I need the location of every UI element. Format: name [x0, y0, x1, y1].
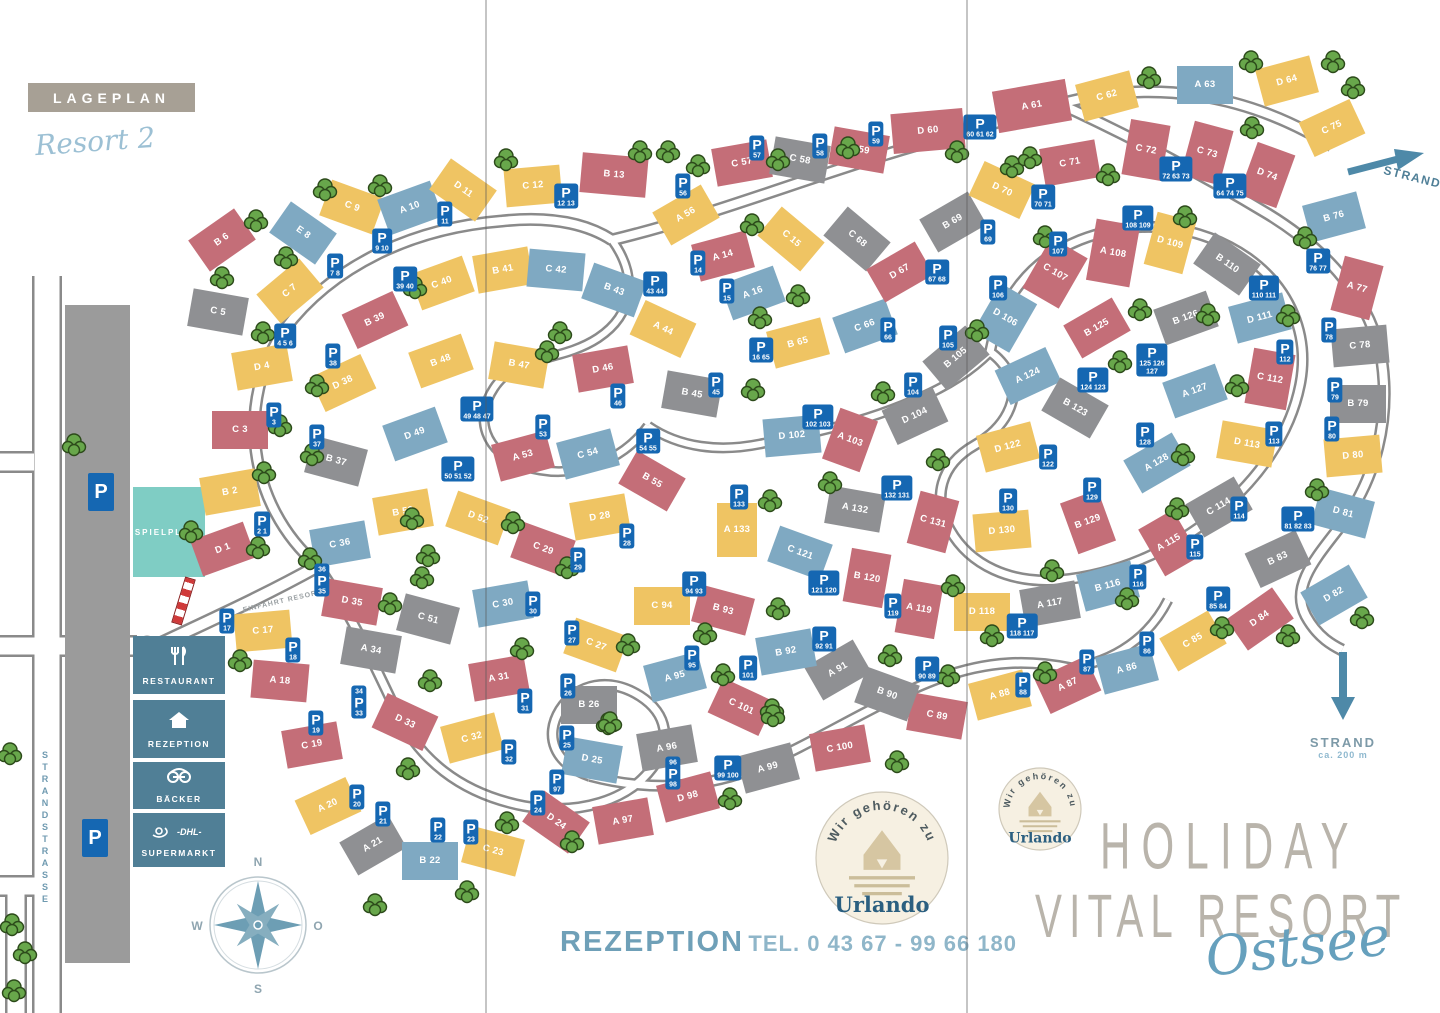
parking-sign-97: P97: [549, 770, 564, 795]
building-label: B 39: [363, 311, 387, 329]
parking-sign-9 10: P9 10: [372, 229, 392, 254]
building-label: C 71: [1059, 156, 1082, 170]
parking-sign-60 61 62: P60 61 62: [963, 115, 996, 140]
building-D-118: D 118: [954, 593, 1010, 631]
parking-numbers: 95: [687, 663, 696, 670]
parking-sign-112: P112: [1276, 340, 1293, 365]
parking-sign-80: P80: [1324, 417, 1339, 442]
building-label: A 21: [361, 835, 384, 854]
facility-supermarkt: -DHL-SUPERMARKT: [133, 813, 225, 867]
parking-p-glyph: P: [466, 822, 475, 836]
parking-numbers: 64 74 75: [1216, 191, 1243, 198]
facility-label: BÄCKER: [156, 794, 201, 804]
building-label: C 30: [492, 597, 515, 611]
parking-p-glyph: P: [815, 629, 833, 643]
compass-n: N: [254, 855, 263, 869]
parking-p-glyph: P: [330, 256, 340, 270]
parking-sign-129: P129: [1083, 478, 1101, 503]
parking-p-glyph: P: [1284, 509, 1311, 523]
parking-sign-45: P45: [708, 373, 723, 398]
parking-numbers: 56: [678, 191, 687, 198]
parking-sign-72 63 73: P72 63 73: [1159, 157, 1192, 182]
facility-rezeption: REZEPTION: [133, 700, 225, 758]
building-label: B 48: [429, 353, 452, 370]
parking-sign-29: P29: [570, 548, 585, 573]
building-label: A 117: [1036, 597, 1063, 611]
parking-numbers: 87: [1082, 667, 1091, 674]
parking-numbers: 58: [815, 151, 824, 158]
building-label: D 74: [1255, 167, 1278, 184]
parking-p-glyph: P: [573, 550, 582, 564]
parking-p-glyph: P: [463, 399, 490, 413]
parking-numbers: 85 84: [1209, 604, 1227, 611]
parking-p-glyph: P: [717, 758, 738, 772]
parking-sign-3: P3: [266, 403, 281, 428]
parking-numbers: 125 126: [1139, 361, 1164, 368]
parking-p-glyph: P: [1125, 208, 1150, 222]
building-A-18: A 18: [250, 660, 309, 703]
parking-sign-18: P18: [285, 638, 300, 663]
parking-sign-133: P133: [730, 485, 748, 510]
building-label: A 115: [1155, 532, 1182, 554]
parking-sign-11: P11: [437, 202, 452, 227]
building-label: B 125: [1083, 317, 1111, 339]
parking-sign-15: P15: [719, 279, 734, 304]
parking-sign-23: P23: [463, 820, 478, 845]
parking-numbers: 105: [942, 343, 954, 350]
parking-sign-81 82 83: P81 82 83: [1281, 507, 1314, 532]
parking-sign-113: P113: [1265, 422, 1282, 447]
building-C-17: C 17: [233, 610, 292, 653]
parking-sign-95: P95: [684, 646, 699, 671]
building-label: D 35: [341, 595, 364, 609]
parking-sign-32: P32: [501, 740, 516, 765]
parking-numbers: 45: [711, 390, 720, 397]
building-label: D 46: [592, 362, 615, 376]
parking-sign-34-33: 34P33: [351, 686, 366, 719]
reception-phone: TEL. 0 43 67 - 99 66 180: [748, 931, 1017, 956]
parking-p-glyph: P: [504, 742, 513, 756]
parking-numbers: 15: [722, 296, 731, 303]
building-label: A 128: [1143, 452, 1171, 474]
parking-sign-25: P25: [559, 726, 574, 751]
building-label: C 114: [1205, 496, 1233, 518]
building-label: B 37: [324, 453, 347, 468]
parking-sign-79: P79: [1327, 378, 1342, 403]
parking-numbers: 20: [352, 802, 361, 809]
parking-sign-66: P66: [880, 318, 895, 343]
compass-o: O: [313, 919, 322, 933]
parking-p-glyph: P: [1132, 567, 1143, 581]
building-label: B 116: [1094, 578, 1122, 594]
parking-p-glyph: P: [317, 574, 326, 588]
parking-numbers: 37: [312, 442, 321, 449]
building-label: C 59: [848, 143, 871, 157]
building-label: B 69: [941, 212, 964, 231]
parking-sign-20: P20: [349, 785, 364, 810]
building-label: B 13: [603, 169, 625, 181]
building-label: C 36: [329, 537, 352, 551]
parking-p-glyph: P: [1327, 419, 1336, 433]
building-label: B 83: [1266, 550, 1290, 568]
parking-p-glyph: P: [375, 231, 389, 245]
parking-numbers: 122: [1042, 462, 1054, 469]
building-label: A 108: [1099, 246, 1127, 260]
building-label: C 5: [209, 306, 226, 319]
building-C-3: C 3: [212, 411, 268, 449]
building-label: D 102: [778, 430, 806, 442]
building-label: B 123: [1061, 397, 1089, 419]
building-label: C 68: [846, 228, 869, 249]
building-label: A 56: [674, 205, 697, 224]
parking-sign-4 5 6: P4 5 6: [274, 324, 296, 349]
parking-sign-108 109: P108 109: [1122, 206, 1153, 231]
parking-sign-106: P106: [989, 276, 1007, 301]
building-label: C 32: [460, 730, 483, 745]
parking-numbers: 128: [1139, 440, 1151, 447]
building-label: C 89: [926, 709, 949, 723]
building-A-133: A 133: [717, 503, 757, 557]
fold-line: [485, 0, 487, 1013]
building-label: D 109: [1156, 235, 1185, 252]
parking-numbers: 115: [1189, 552, 1200, 559]
parking-p-glyph: P: [711, 375, 720, 389]
parking-p-glyph: P: [752, 340, 770, 354]
building-B-13: B 13: [579, 152, 648, 198]
svg-text:Urlando: Urlando: [835, 892, 930, 917]
parking-sign-53: P53: [535, 415, 550, 440]
parking-p-glyph: P: [1082, 652, 1091, 666]
parking-p-glyph: P: [742, 658, 754, 672]
building-label: C 121: [786, 544, 815, 563]
parking-sign-14: P14: [690, 251, 705, 276]
parking-numbers: 32: [504, 757, 513, 764]
urlando-badge: Wir gehören zu Urlando: [994, 763, 1086, 855]
parking-sign-39 40: P39 40: [393, 267, 417, 292]
parking-p-glyph: P: [257, 514, 267, 528]
building-label: B 22: [419, 856, 440, 866]
parking-sign-38: P38: [325, 344, 340, 369]
parking-numbers: 49 48 47: [463, 414, 490, 421]
facility-restaurant: RESTAURANT: [133, 636, 225, 694]
building-label: C 54: [576, 446, 599, 461]
parking-numbers: 46: [613, 401, 622, 408]
building-label: D 111: [1246, 310, 1274, 326]
parking-p-glyph: P: [1309, 251, 1327, 265]
parking-numbers: 39 40: [396, 284, 414, 291]
parking-p-glyph: P: [1268, 424, 1279, 438]
parking-p-glyph: P: [538, 417, 547, 431]
parking-p-glyph: P: [378, 804, 387, 818]
building-label: D 122: [994, 439, 1023, 456]
parking-p-glyph: P: [528, 594, 537, 608]
parking-numbers: 113: [1268, 439, 1279, 446]
parking-numbers: 11: [440, 219, 449, 226]
parking-sign-125 126-127: P125 126127: [1136, 344, 1167, 377]
parking-numbers: 29: [573, 565, 582, 572]
parking-p-glyph: P: [352, 787, 361, 801]
parking-numbers: 23: [466, 837, 475, 844]
building-label: A 86: [1116, 661, 1139, 676]
parking-p-glyph: P: [1018, 675, 1027, 689]
building-label: A 77: [1346, 280, 1369, 295]
parking-sign-105: P105: [939, 326, 957, 351]
restaurant-icon: [168, 645, 190, 672]
parking-sign-114: P114: [1230, 497, 1247, 522]
parking-p-glyph: P: [1139, 425, 1151, 439]
parking-p-glyph: P: [983, 222, 992, 236]
parking-numbers: 108 109: [1125, 223, 1150, 230]
parking-numbers: 99 100: [717, 773, 738, 780]
parking-sign-50 51 52: P50 51 52: [441, 457, 474, 482]
parking-sign-30: P30: [525, 592, 540, 617]
building-label: A 53: [512, 448, 535, 463]
parking-numbers: 30: [528, 609, 537, 616]
parking-sign-115: P115: [1186, 535, 1203, 560]
parking-numbers: 114: [1233, 514, 1244, 521]
parking-p-glyph: P: [942, 328, 954, 342]
parking-numbers: 4 5 6: [277, 341, 293, 348]
building-label: C 58: [789, 153, 812, 167]
parking-numbers: 60 61 62: [966, 132, 993, 139]
parking-numbers: 118 117: [1010, 631, 1035, 638]
building-A-63: A 63: [1177, 66, 1233, 104]
parking-sign-24: P24: [530, 791, 545, 816]
parking-numbers: 27: [567, 638, 576, 645]
parking-sign-76 77: P76 77: [1306, 249, 1330, 274]
building-D-60: D 60: [890, 108, 965, 154]
parking-numbers: 16 65: [752, 355, 770, 362]
parking-numbers: 129: [1086, 495, 1098, 502]
parking-p-glyph: P: [966, 117, 993, 131]
parking-p-glyph: P: [883, 320, 892, 334]
compass-s: S: [254, 982, 262, 996]
parking-p-glyph: P: [1080, 370, 1105, 384]
building-label: B 2: [221, 486, 238, 499]
building-label: C 100: [826, 741, 854, 755]
parking-numbers: 76 77: [1309, 266, 1327, 273]
building-label: A 88: [989, 687, 1012, 702]
building-label: C 12: [522, 180, 544, 192]
parking-p-glyph: P: [811, 573, 836, 587]
parking-numbers: 101: [742, 673, 754, 680]
parking-p-glyph: P: [622, 526, 631, 540]
reception-label: REZEPTION: [560, 926, 744, 958]
parking-numbers: 66: [883, 335, 892, 342]
resort-title-line1: HOLIDAY: [1100, 808, 1360, 884]
parking-p-glyph: P: [1216, 176, 1243, 190]
building-label: D 38: [331, 374, 355, 392]
parking-p-glyph: P: [887, 596, 898, 610]
parking-p-glyph: P: [722, 281, 731, 295]
parking-numbers: 81 82 83: [1284, 524, 1311, 531]
building-label: B 50: [392, 505, 415, 519]
parking-sign-36-35: 36P35: [314, 564, 329, 597]
parking-numbers: 33: [354, 711, 363, 718]
building-label: D 84: [1248, 609, 1271, 629]
parking-p-glyph: P: [693, 253, 702, 267]
parking-p-glyph: P: [639, 431, 657, 445]
parking-sign-102 103: P102 103: [802, 405, 833, 430]
building-label: D 11: [452, 180, 475, 200]
building-C-78: C 78: [1330, 325, 1389, 368]
building-label: C 107: [1041, 262, 1069, 284]
building-label: A 16: [741, 285, 764, 302]
parking-p-glyph: P: [992, 278, 1004, 292]
building-label: B 90: [875, 686, 898, 703]
parking-p-glyph: P: [871, 124, 880, 138]
parking-p-glyph: P: [685, 574, 703, 588]
building-label: D 1: [214, 542, 232, 557]
building-label: D 33: [393, 713, 417, 731]
parking-numbers: 50 51 52: [444, 474, 471, 481]
parking-sign-104: P104: [904, 373, 922, 398]
parking-sign-43 44: P43 44: [643, 272, 667, 297]
building-C-42: C 42: [526, 249, 585, 292]
building-label: C 27: [584, 637, 607, 654]
parking-numbers: 31: [520, 706, 529, 713]
building-label: A 103: [836, 431, 864, 449]
parking-sign-27: P27: [564, 621, 579, 646]
parking-sign-67 68: P67 68: [925, 260, 949, 285]
building-label: E 8: [294, 225, 312, 242]
parking-sign-70 71: P70 71: [1031, 185, 1055, 210]
parking-sign-119: P119: [884, 594, 901, 619]
parking-numbers: 21: [378, 819, 387, 826]
building-label: D 4: [253, 361, 270, 374]
parking-numbers: 119: [887, 611, 898, 618]
parking-p-glyph: P: [1086, 480, 1098, 494]
parking-p-glyph: P: [1324, 320, 1333, 334]
parking-p-glyph: P: [552, 772, 561, 786]
parking-sign-16 65: P16 65: [749, 338, 773, 363]
urlando-badge: Wir gehören zu Urlando: [811, 787, 953, 929]
parking-sign-90 89: P90 89: [915, 657, 939, 682]
parking-numbers: 102 103: [805, 422, 830, 429]
parking-p-glyph: P: [1002, 491, 1014, 505]
parking-numbers: 12 13: [557, 201, 575, 208]
building-label: B 41: [492, 263, 515, 277]
parking-sign-96-98: 96P98: [665, 757, 680, 790]
parking-p-glyph: P: [562, 728, 571, 742]
parking-numbers: 133: [733, 502, 745, 509]
svg-text:-DHL-: -DHL-: [177, 827, 202, 837]
building-label: D 70: [990, 181, 1014, 199]
building-label: B 120: [853, 571, 881, 585]
parking-numbers: 88: [1018, 690, 1027, 697]
building-label: C 19: [301, 738, 324, 752]
building-label: A 44: [651, 320, 674, 338]
parking-p-glyph: P: [918, 659, 936, 673]
building-label: D 130: [988, 525, 1016, 537]
parking-p-glyph: P: [269, 405, 278, 419]
parking-sign-92 91: P92 91: [812, 627, 836, 652]
building-label: D 28: [589, 510, 612, 524]
parking-p-glyph: P: [1139, 346, 1164, 360]
strand-right-text: STRAND: [1300, 735, 1386, 750]
parking-numbers: 92 91: [815, 644, 833, 651]
parking-sign-99 100: P99 100: [714, 756, 741, 781]
parking-numbers: 110 111: [1252, 293, 1276, 300]
parking-p-glyph: P: [752, 138, 761, 152]
building-label: D 49: [403, 426, 426, 443]
parking-sign-128: P128: [1136, 423, 1154, 448]
building-B-22: B 22: [402, 842, 458, 880]
parking-sign-101: P101: [739, 656, 757, 681]
parking-sign-85 84: P85 84: [1206, 587, 1230, 612]
parking-numbers: 7 8: [330, 271, 340, 278]
parking-numbers: 72 63 73: [1162, 174, 1189, 181]
parking-sign-58: P58: [812, 134, 827, 159]
building-label: C 85: [1181, 631, 1204, 650]
building-label: A 31: [488, 671, 510, 684]
parking-p-glyph: P: [1252, 278, 1276, 292]
building-label: A 87: [1056, 676, 1079, 694]
building-label: C 40: [430, 275, 453, 292]
parking-sign-121 120: P121 120: [808, 571, 839, 596]
parking-p-glyph: P: [687, 648, 696, 662]
parking-p-glyph: P: [1042, 447, 1054, 461]
building-label: B 93: [711, 602, 734, 617]
building-label: C 66: [853, 318, 876, 335]
parking-p-glyph: P: [277, 326, 293, 340]
building-label: C 94: [651, 601, 672, 611]
parking-numbers: 98: [668, 782, 677, 789]
building-label: D 64: [1275, 73, 1298, 88]
parking-p-glyph: P: [396, 269, 414, 283]
parking-numbers: 124 123: [1080, 385, 1105, 392]
parking-p-glyph: P: [433, 820, 442, 834]
parking-p-glyph: P: [613, 386, 622, 400]
building-label: A 96: [656, 741, 678, 754]
building-label: C 62: [1095, 88, 1118, 103]
parking-p-glyph: P: [646, 274, 664, 288]
svg-text:Urlando: Urlando: [1008, 831, 1071, 847]
parking-sign-107: P107: [1049, 232, 1067, 257]
parking-p-glyph: P: [354, 696, 363, 710]
building-label: C 42: [545, 264, 567, 276]
parking-sign-87: P87: [1079, 650, 1094, 675]
parking-numbers: 127: [1139, 369, 1164, 376]
parking-p-glyph: P: [1162, 159, 1189, 173]
parking-p-glyph: P: [222, 611, 231, 625]
parking-p-glyph: P: [668, 767, 677, 781]
building-label: C 101: [727, 697, 756, 717]
parking-numbers: 130: [1002, 506, 1014, 513]
building-label: A 99: [757, 760, 780, 775]
parking-sign-78: P78: [1321, 318, 1336, 343]
building-label: B 129: [1074, 513, 1103, 532]
building-label: D 82: [1322, 585, 1345, 604]
parking-lot-area: [65, 305, 130, 963]
building-label: C 51: [416, 611, 439, 626]
parking-numbers: 17: [222, 626, 231, 633]
strand-right-distance: ca. 200 m: [1300, 750, 1386, 760]
building-label: B 92: [775, 645, 798, 659]
parking-sign-31: P31: [517, 689, 532, 714]
building-label: B 47: [508, 358, 531, 372]
parking-sign-59: P59: [868, 122, 883, 147]
parking-sign-124 123: P124 123: [1077, 368, 1108, 393]
building-label: A 63: [1195, 80, 1216, 90]
parking-p-glyph: P: [563, 676, 572, 690]
parking-sign-86: P86: [1139, 632, 1154, 657]
building-label: D 81: [1331, 505, 1354, 520]
parking-numbers: 86: [1142, 649, 1151, 656]
parking-numbers: 24: [533, 808, 542, 815]
building-label: C 73: [1195, 145, 1218, 160]
parking-sign-46: P46: [610, 384, 625, 409]
